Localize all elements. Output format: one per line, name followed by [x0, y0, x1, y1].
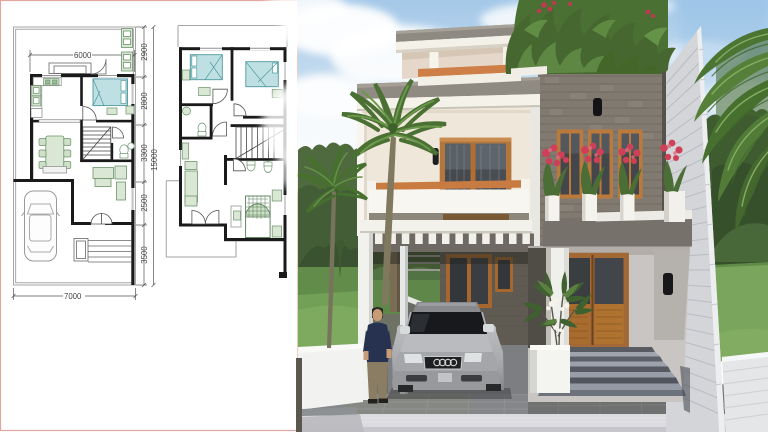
svg-text:2800: 2800	[140, 92, 149, 110]
svg-text:2500: 2500	[140, 194, 149, 212]
svg-text:3500: 3500	[140, 246, 149, 264]
svg-text:3300: 3300	[140, 144, 149, 162]
svg-text:7000: 7000	[64, 292, 82, 301]
svg-text:2900: 2900	[140, 43, 149, 61]
svg-text:6000: 6000	[74, 51, 92, 60]
svg-text:15000: 15000	[150, 148, 159, 170]
